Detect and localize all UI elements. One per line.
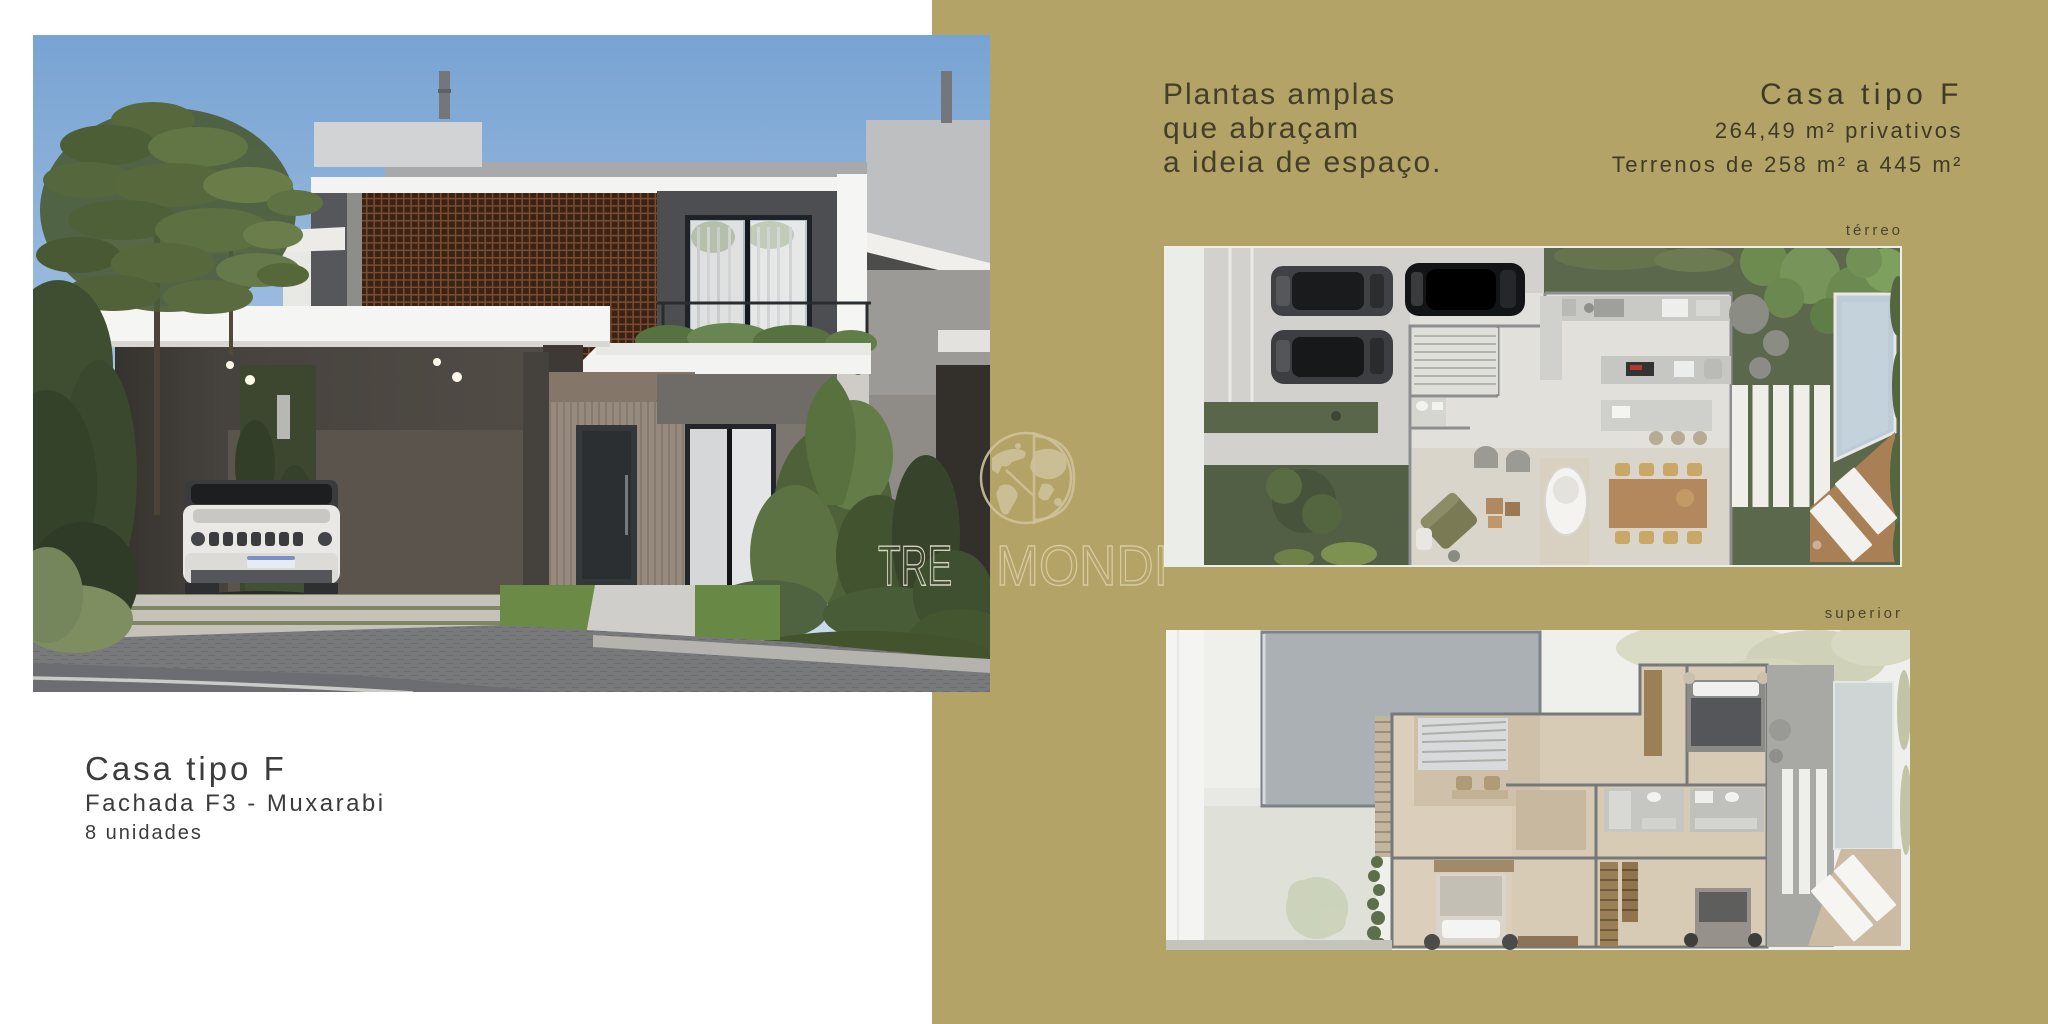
svg-text:TRE: TRE	[878, 534, 952, 598]
svg-text:MONDI: MONDI	[996, 534, 1168, 598]
